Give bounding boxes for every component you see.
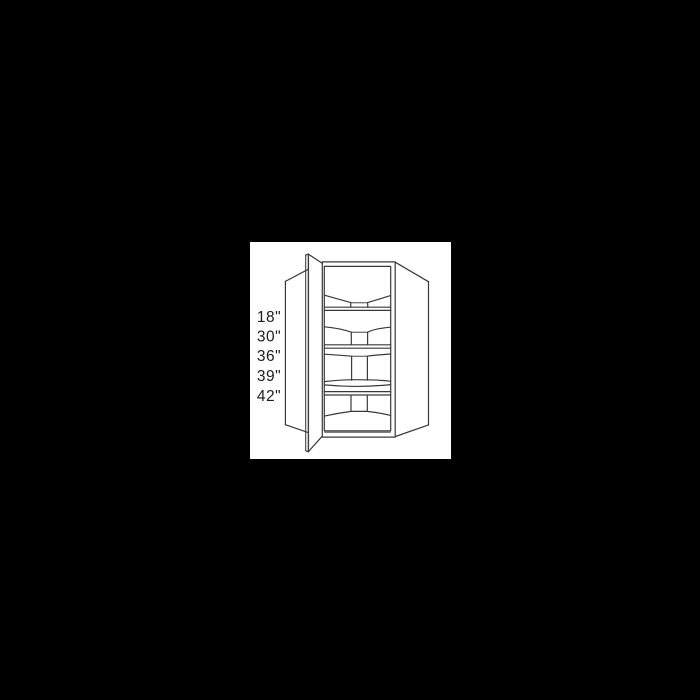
svg-text:36": 36" [257, 348, 281, 365]
svg-text:30": 30" [257, 329, 281, 346]
svg-text:39": 39" [257, 368, 281, 385]
svg-text:18": 18" [257, 309, 281, 326]
svg-text:42": 42" [257, 388, 281, 405]
